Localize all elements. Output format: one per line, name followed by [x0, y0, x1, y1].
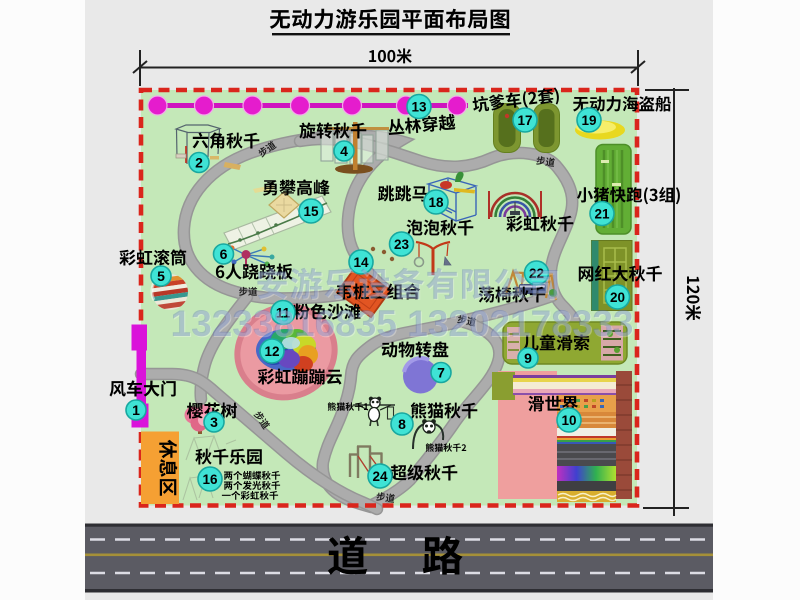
svg-text:14: 14	[353, 255, 369, 270]
svg-text:4: 4	[340, 143, 348, 159]
svg-text:9: 9	[524, 350, 532, 366]
svg-text:12: 12	[264, 344, 279, 359]
svg-text:2: 2	[195, 155, 203, 171]
svg-text:3: 3	[210, 414, 218, 430]
svg-text:13233816835 13202178333: 13233816835 13202178333	[171, 303, 634, 344]
svg-text:24: 24	[372, 469, 388, 484]
svg-text:15: 15	[303, 204, 319, 219]
svg-text:17: 17	[517, 113, 532, 128]
svg-text:21: 21	[594, 206, 610, 221]
svg-text:10: 10	[561, 413, 576, 428]
svg-text:19: 19	[581, 113, 596, 128]
svg-text:8: 8	[398, 416, 406, 432]
svg-text:23: 23	[394, 237, 410, 252]
svg-text:6: 6	[220, 246, 228, 262]
svg-text:1: 1	[132, 402, 140, 418]
svg-text:5: 5	[157, 268, 165, 284]
svg-text:13: 13	[411, 99, 427, 114]
svg-text:18: 18	[428, 195, 444, 210]
svg-text:16: 16	[202, 472, 218, 487]
svg-text:7: 7	[437, 365, 445, 381]
